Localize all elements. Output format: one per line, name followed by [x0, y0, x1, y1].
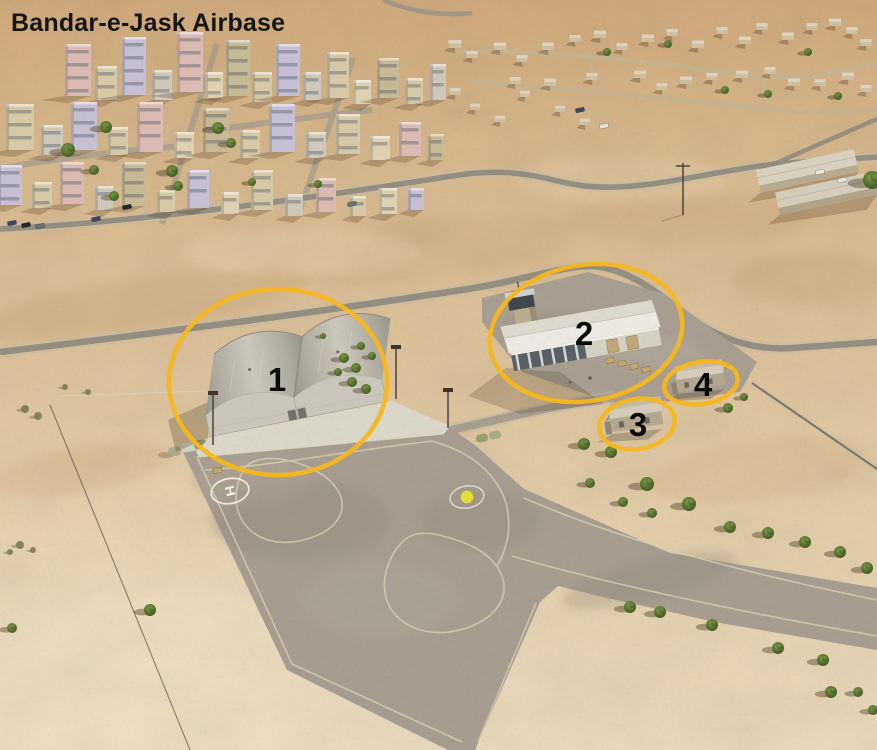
screenshot-root: H [0, 0, 877, 750]
annotation-label-1: 1 [268, 361, 286, 398]
annotation-label-3: 3 [629, 406, 647, 443]
annotation-label-2: 2 [575, 315, 593, 352]
page-title: Bandar-e-Jask Airbase [11, 9, 285, 37]
airbase-scene: H [0, 0, 877, 750]
film-grain [0, 0, 877, 750]
annotation-label-4: 4 [694, 366, 713, 403]
